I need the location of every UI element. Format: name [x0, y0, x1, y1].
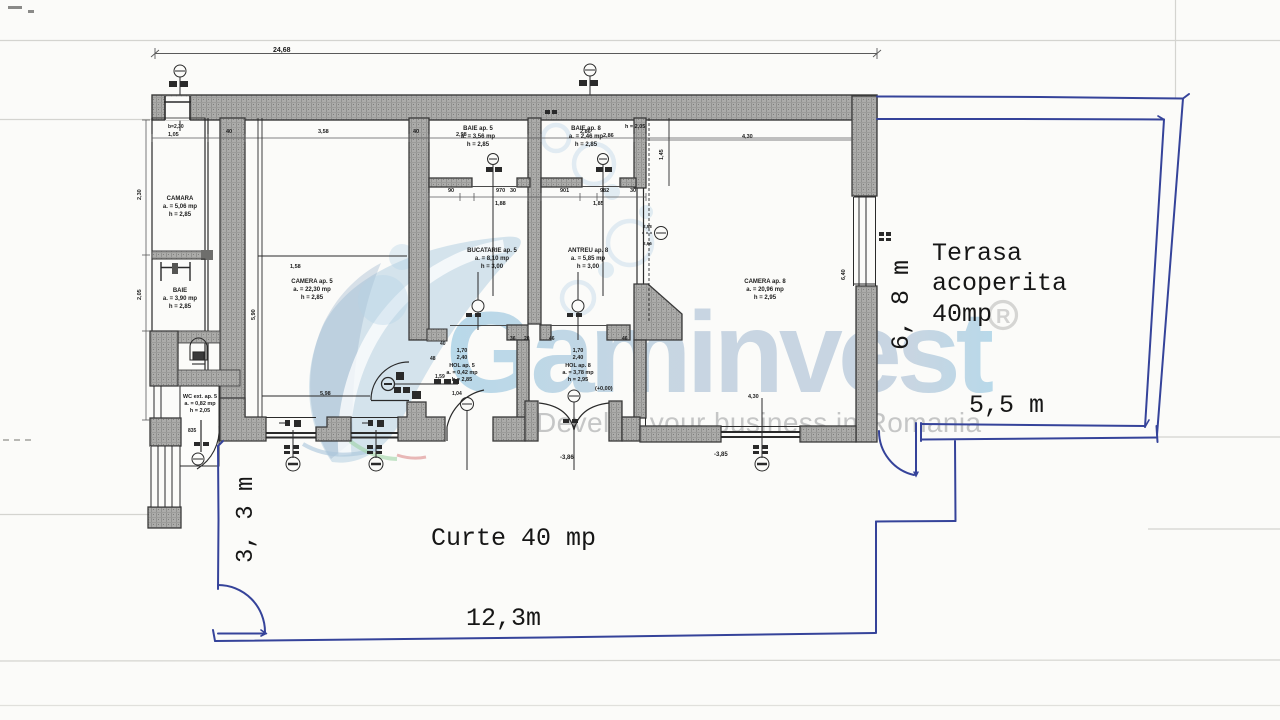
svg-text:5,98: 5,98	[320, 391, 331, 397]
svg-text:h = 2,95: h = 2,95	[754, 295, 777, 301]
svg-text:2,66: 2,66	[643, 241, 652, 246]
svg-text:CAMERA ap. 8: CAMERA ap. 8	[744, 279, 786, 285]
svg-text:1,70: 1,70	[573, 348, 584, 354]
svg-text:1,85: 1,85	[593, 201, 604, 207]
svg-text:a. = 8,10 mp: a. = 8,10 mp	[475, 256, 510, 262]
svg-text:CAMERA ap. 5: CAMERA ap. 5	[291, 279, 333, 285]
svg-text:46: 46	[622, 336, 628, 342]
svg-text:b=2,30: b=2,30	[168, 124, 184, 130]
svg-text:a. = 0,82 mp: a. = 0,82 mp	[184, 401, 216, 407]
svg-text:h = 2,05: h = 2,05	[625, 124, 645, 130]
svg-text:a. = 20,96 mp: a. = 20,96 mp	[746, 287, 784, 293]
svg-text:30: 30	[630, 188, 636, 194]
svg-text:6,40: 6,40	[841, 269, 847, 280]
svg-text:1,70: 1,70	[457, 348, 468, 354]
svg-text:h = 3,00: h = 3,00	[577, 264, 600, 270]
svg-text:24,68: 24,68	[273, 47, 291, 54]
svg-text:48: 48	[430, 356, 436, 362]
svg-text:HOL ap. 8: HOL ap. 8	[565, 363, 591, 369]
svg-text:2,30: 2,30	[137, 189, 143, 200]
svg-text:1,45: 1,45	[659, 149, 665, 160]
svg-text:Develop your business in Roman: Develop your business in Romania	[536, 407, 982, 438]
svg-text:h = 2,05: h = 2,05	[190, 408, 210, 414]
svg-text:901: 901	[560, 188, 569, 194]
svg-text:40mp: 40mp	[932, 300, 992, 329]
svg-text:2,86: 2,86	[603, 133, 614, 139]
svg-text:835: 835	[188, 428, 197, 434]
svg-text:4,30: 4,30	[748, 394, 759, 400]
svg-text:h = 2,95: h = 2,95	[568, 377, 588, 383]
svg-text:WC ext. ap. 5: WC ext. ap. 5	[183, 394, 217, 400]
svg-text:a. = 22,30 mp: a. = 22,30 mp	[293, 287, 331, 293]
svg-text:(+0,00): (+0,00)	[595, 386, 613, 392]
svg-text:-3,85: -3,85	[714, 452, 728, 458]
svg-text:BAIE ap. 8: BAIE ap. 8	[571, 126, 601, 132]
svg-text:CAMARA: CAMARA	[167, 196, 194, 202]
svg-text:h = 2,85: h = 2,85	[169, 212, 192, 218]
svg-text:40: 40	[413, 129, 419, 135]
svg-text:h = 2,85: h = 2,85	[575, 142, 598, 148]
svg-text:3, 3 m: 3, 3 m	[233, 477, 260, 563]
svg-text:2,40: 2,40	[573, 355, 584, 361]
svg-text:h = 2,85: h = 2,85	[467, 142, 490, 148]
svg-text:1,04: 1,04	[452, 391, 462, 397]
svg-text:30: 30	[510, 188, 516, 194]
svg-text:6, 8 m: 6, 8 m	[887, 260, 916, 350]
svg-text:a. = 5,06 mp: a. = 5,06 mp	[163, 204, 198, 210]
svg-text:36: 36	[510, 336, 516, 342]
svg-text:2,40: 2,40	[457, 355, 468, 361]
svg-text:BUCATARIE ap. 5: BUCATARIE ap. 5	[467, 248, 517, 254]
svg-text:970: 970	[496, 188, 505, 194]
svg-text:5,5 m: 5,5 m	[969, 391, 1044, 420]
svg-text:46: 46	[549, 336, 555, 342]
svg-text:1,05: 1,05	[168, 132, 179, 138]
svg-text:4,30: 4,30	[742, 134, 753, 140]
svg-text:982: 982	[600, 188, 609, 194]
svg-text:-3,86: -3,86	[560, 455, 574, 461]
svg-text:acoperita: acoperita	[932, 269, 1067, 298]
svg-text:40: 40	[226, 129, 232, 135]
svg-text:a. = 5,85 mp: a. = 5,85 mp	[571, 256, 606, 262]
svg-text:BAIE ap. 5: BAIE ap. 5	[463, 126, 493, 132]
svg-text:5,90: 5,90	[251, 309, 257, 320]
svg-text:R: R	[996, 306, 1011, 328]
svg-text:20: 20	[524, 336, 530, 342]
svg-text:2,05: 2,05	[137, 289, 143, 300]
svg-text:h = 3,00: h = 3,00	[481, 264, 504, 270]
svg-text:a. = 0,42 mp: a. = 0,42 mp	[446, 370, 478, 376]
svg-text:h = 2,85: h = 2,85	[301, 295, 324, 301]
svg-text:40: 40	[440, 341, 446, 347]
svg-text:Terasa: Terasa	[932, 239, 1022, 268]
svg-text:h = 2,85: h = 2,85	[169, 304, 192, 310]
svg-text:a. = 3,56 mp: a. = 3,56 mp	[461, 134, 496, 140]
svg-text:BAIE: BAIE	[173, 288, 187, 294]
svg-text:a. = 2,46 mp: a. = 2,46 mp	[569, 134, 604, 140]
svg-text:1,58: 1,58	[290, 264, 301, 270]
svg-text:3,58: 3,58	[318, 129, 329, 135]
svg-text:HOL ap. 5: HOL ap. 5	[449, 363, 475, 369]
svg-text:90: 90	[448, 188, 454, 194]
svg-text:a. = 3,78 mp: a. = 3,78 mp	[562, 370, 594, 376]
svg-text:1,88: 1,88	[495, 201, 506, 207]
svg-text:12,3m: 12,3m	[466, 604, 541, 633]
svg-text:a. = 3,90 mp: a. = 3,90 mp	[163, 296, 198, 302]
svg-text:2,58: 2,58	[643, 224, 652, 229]
svg-text:Curte 40 mp: Curte 40 mp	[431, 524, 596, 553]
